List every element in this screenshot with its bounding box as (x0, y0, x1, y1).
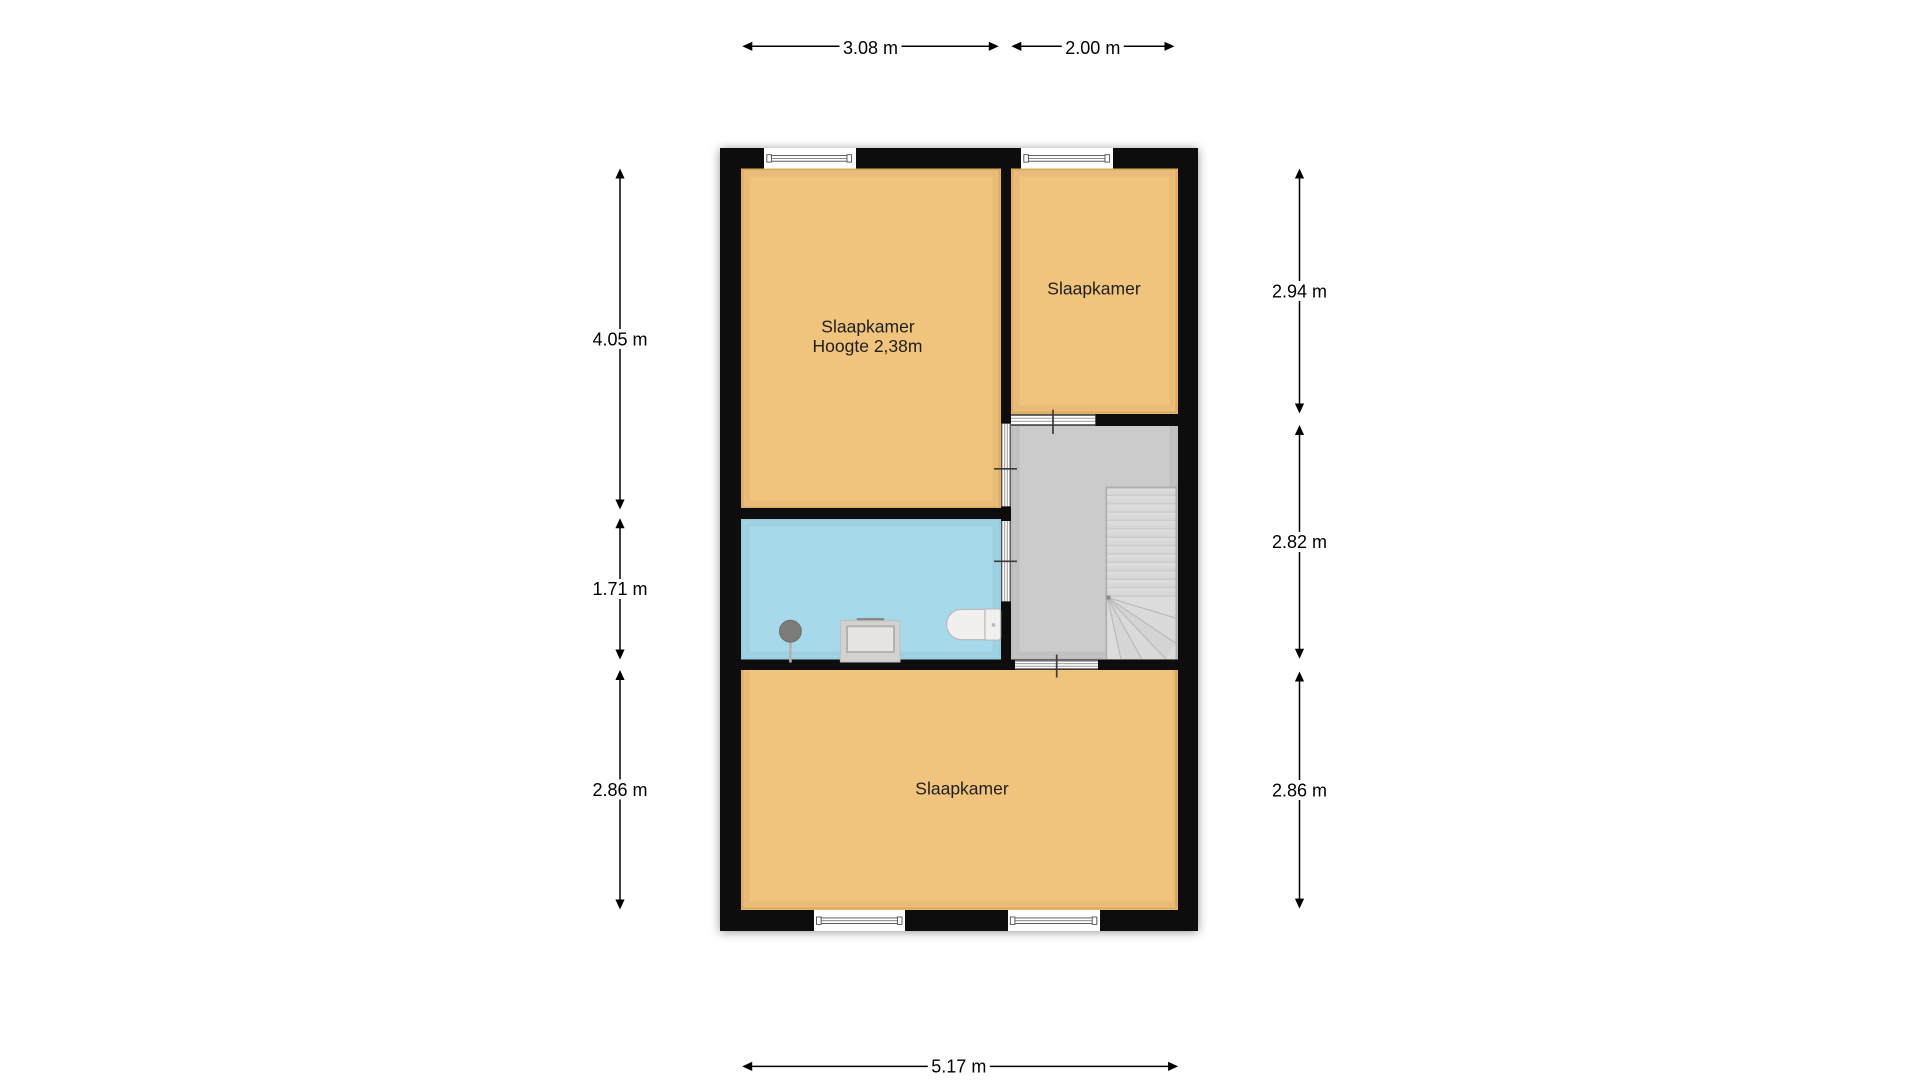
svg-text:Slaapkamer: Slaapkamer (1047, 278, 1141, 298)
svg-text:2.00 m: 2.00 m (1065, 38, 1120, 58)
svg-text:2.86 m: 2.86 m (1272, 780, 1327, 800)
svg-text:2.82 m: 2.82 m (1272, 532, 1327, 552)
svg-text:4.05 m: 4.05 m (592, 329, 647, 349)
svg-text:1.71 m: 1.71 m (592, 579, 647, 599)
svg-text:5.17 m: 5.17 m (931, 1057, 986, 1077)
svg-text:Slaapkamer: Slaapkamer (915, 778, 1009, 798)
svg-text:Slaapkamer: Slaapkamer (821, 317, 915, 337)
svg-text:3.08 m: 3.08 m (843, 38, 898, 58)
svg-text:2.86 m: 2.86 m (592, 780, 647, 800)
svg-text:2.94 m: 2.94 m (1272, 281, 1327, 301)
svg-text:Hoogte 2,38m: Hoogte 2,38m (813, 336, 923, 356)
